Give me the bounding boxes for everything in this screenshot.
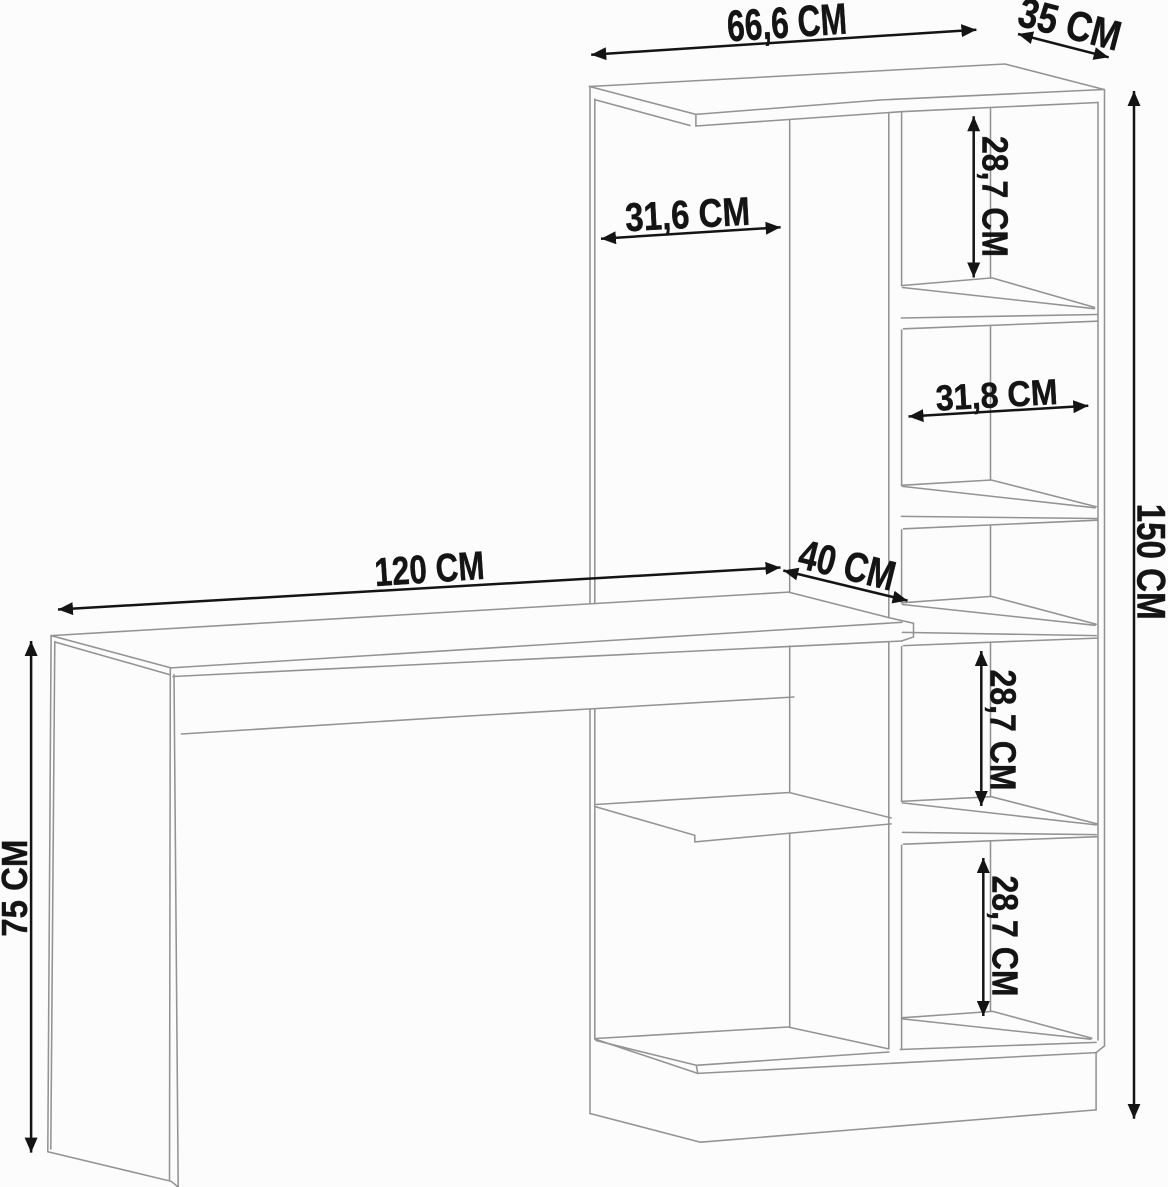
svg-text:120 CM: 120 CM — [373, 544, 486, 595]
svg-text:31,6 CM: 31,6 CM — [624, 190, 751, 240]
svg-text:28,7 CM: 28,7 CM — [982, 670, 1023, 791]
svg-text:75 CM: 75 CM — [0, 840, 35, 937]
svg-text:150 CM: 150 CM — [1129, 504, 1168, 620]
svg-text:28,7 CM: 28,7 CM — [975, 136, 1016, 257]
svg-text:66,6 CM: 66,6 CM — [725, 0, 848, 51]
svg-text:31,8 CM: 31,8 CM — [935, 371, 1059, 419]
svg-text:28,7 CM: 28,7 CM — [984, 875, 1025, 996]
